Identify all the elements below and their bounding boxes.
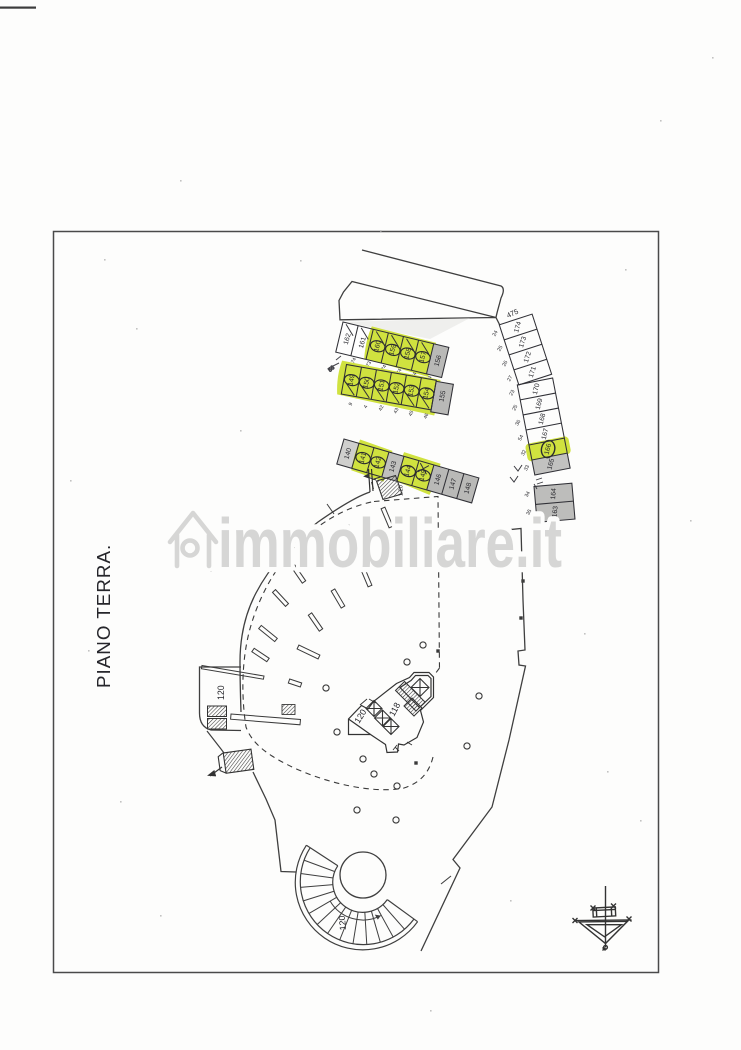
svg-text:PIANO TERRA.: PIANO TERRA. bbox=[93, 544, 114, 688]
svg-text:immobiliare.it: immobiliare.it bbox=[218, 505, 562, 583]
svg-text:120: 120 bbox=[216, 685, 226, 700]
svg-text:120: 120 bbox=[337, 915, 348, 931]
svg-text:164: 164 bbox=[550, 488, 558, 500]
svg-text:1.20: 1.20 bbox=[399, 485, 405, 496]
